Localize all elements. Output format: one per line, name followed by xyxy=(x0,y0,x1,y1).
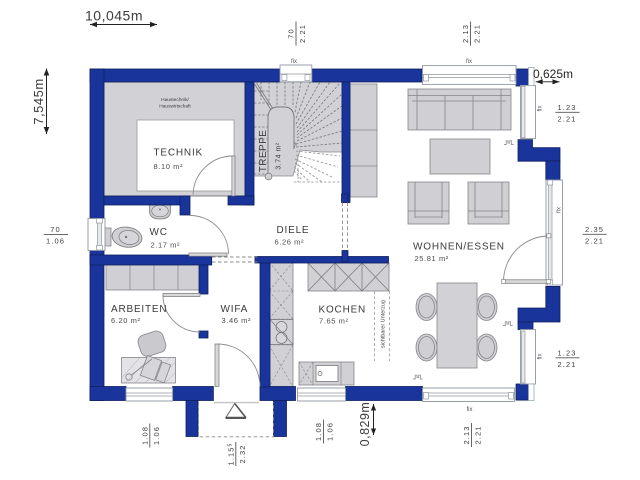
svg-text:6.20 m²: 6.20 m² xyxy=(111,316,141,325)
svg-text:1.06: 1.06 xyxy=(326,422,335,441)
svg-text:fix: fix xyxy=(291,59,297,65)
svg-text:0,625m: 0,625m xyxy=(533,67,573,81)
svg-text:25.81 m²: 25.81 m² xyxy=(415,254,449,263)
svg-text:sichtbarer Unterzug: sichtbarer Unterzug xyxy=(381,300,387,348)
svg-text:KOCHEN: KOCHEN xyxy=(319,305,367,316)
svg-text:1.06: 1.06 xyxy=(46,237,65,246)
svg-text:WIFA: WIFA xyxy=(221,304,249,315)
svg-text:1.23: 1.23 xyxy=(558,103,577,112)
svg-text:2.32: 2.32 xyxy=(238,445,247,464)
svg-text:10,045m: 10,045m xyxy=(85,8,143,24)
svg-text:8.10 m²: 8.10 m² xyxy=(154,162,184,171)
svg-text:7.65 m²: 7.65 m² xyxy=(319,317,349,326)
svg-text:2.21: 2.21 xyxy=(585,237,604,246)
svg-text:70: 70 xyxy=(287,28,296,39)
svg-text:2.21: 2.21 xyxy=(474,426,483,445)
svg-text:0,829m: 0,829m xyxy=(358,402,372,447)
svg-text:2.21: 2.21 xyxy=(473,24,482,43)
svg-text:fix: fix xyxy=(538,106,544,112)
svg-text:Hauswirtschaft: Hauswirtschaft xyxy=(159,104,191,110)
svg-text:TECHNIK: TECHNIK xyxy=(154,148,204,159)
svg-text:ARBEITEN: ARBEITEN xyxy=(111,304,167,315)
svg-text:2.21: 2.21 xyxy=(558,360,577,369)
svg-text:2.35: 2.35 xyxy=(585,225,604,234)
svg-text:7,545m: 7,545m xyxy=(31,78,46,124)
svg-text:2.13: 2.13 xyxy=(462,426,471,445)
svg-text:1.06: 1.06 xyxy=(152,426,161,445)
svg-text:6.26 m²: 6.26 m² xyxy=(275,238,305,247)
svg-text:fix: fix xyxy=(466,59,472,65)
svg-text:2.21: 2.21 xyxy=(558,115,577,124)
svg-text:DIELE: DIELE xyxy=(277,225,310,236)
svg-text:70: 70 xyxy=(50,225,61,234)
svg-text:2.21: 2.21 xyxy=(298,24,307,43)
svg-text:fix: fix xyxy=(557,207,563,213)
svg-text:TREPPE: TREPPE xyxy=(258,130,269,172)
svg-text:3.74 m²: 3.74 m² xyxy=(276,142,283,169)
svg-text:Haustechnik/: Haustechnik/ xyxy=(161,97,189,103)
svg-text:fix: fix xyxy=(467,407,473,413)
svg-text:1.23: 1.23 xyxy=(558,349,577,358)
svg-text:WOHNEN/ESSEN: WOHNEN/ESSEN xyxy=(413,242,505,253)
svg-text:2.17 m²: 2.17 m² xyxy=(151,241,181,250)
svg-text:3.46 m²: 3.46 m² xyxy=(222,316,252,325)
svg-text:WC: WC xyxy=(150,227,168,238)
svg-text:1.08: 1.08 xyxy=(140,426,149,445)
svg-text:fix: fix xyxy=(538,354,544,360)
svg-text:2.13: 2.13 xyxy=(461,24,470,43)
svg-text:1.08: 1.08 xyxy=(314,422,323,441)
